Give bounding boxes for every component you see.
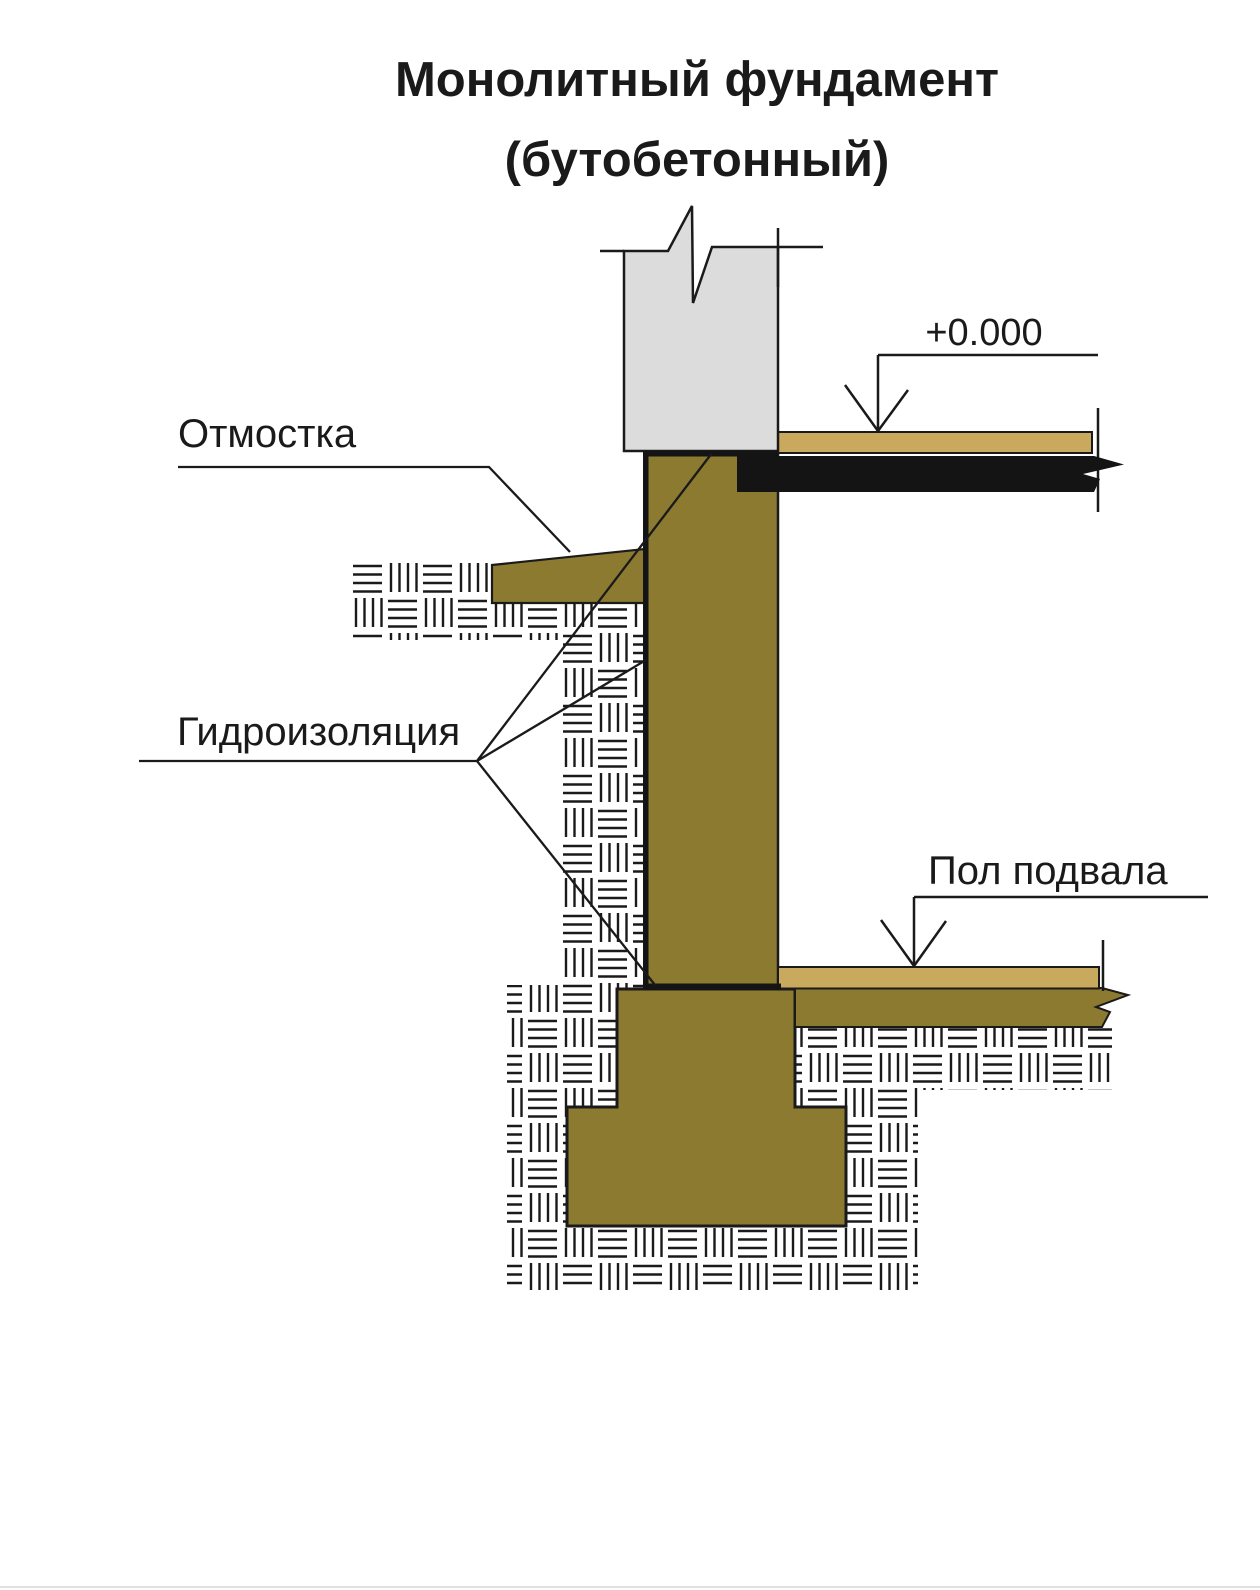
basement-floor-mark (881, 897, 1208, 966)
wall-above-cut (624, 206, 778, 451)
page-bottom-edge (0, 1586, 1260, 1588)
drawing-page: Монолитный фундамент (бутобетонный) Отмо… (0, 0, 1260, 1590)
label-blind-area: Отмостка (178, 412, 357, 456)
elevation-arrow-left-leg (845, 385, 878, 431)
waterproofing-vertical (643, 451, 649, 988)
blind-area-wedge (492, 549, 645, 603)
label-basement-floor: Пол подвала (928, 849, 1168, 893)
wall-above-group (600, 206, 823, 451)
basement-floor-arrow-left-leg (881, 920, 914, 966)
elevation-arrow-right-leg (878, 390, 908, 431)
ground-floor-slab (778, 432, 1092, 453)
label-elevation-value: +0.000 (925, 312, 1042, 354)
foundation-wall (645, 451, 778, 988)
blind-area-leader-line (178, 467, 570, 552)
drawing-title-line1: Монолитный фундамент (395, 53, 999, 107)
waterproofing-membrane-horizontal (737, 456, 1124, 492)
basement-floor-screed (778, 967, 1099, 989)
drawing-title-line2: (бутобетонный) (505, 133, 890, 187)
waterproofing-wall-bottom (643, 984, 781, 991)
foundation-section-diagram: Монолитный фундамент (бутобетонный) Отмо… (0, 0, 1260, 1590)
basement-floor-arrow-right-leg (914, 921, 946, 966)
soil-hatch-wall-strip (562, 600, 645, 990)
basement-floor-base-layer (795, 988, 1128, 1027)
soil-hatch-under-basement-floor (795, 1025, 1112, 1090)
label-waterproofing: Гидроизоляция (177, 710, 460, 754)
elevation-mark (845, 355, 1098, 431)
